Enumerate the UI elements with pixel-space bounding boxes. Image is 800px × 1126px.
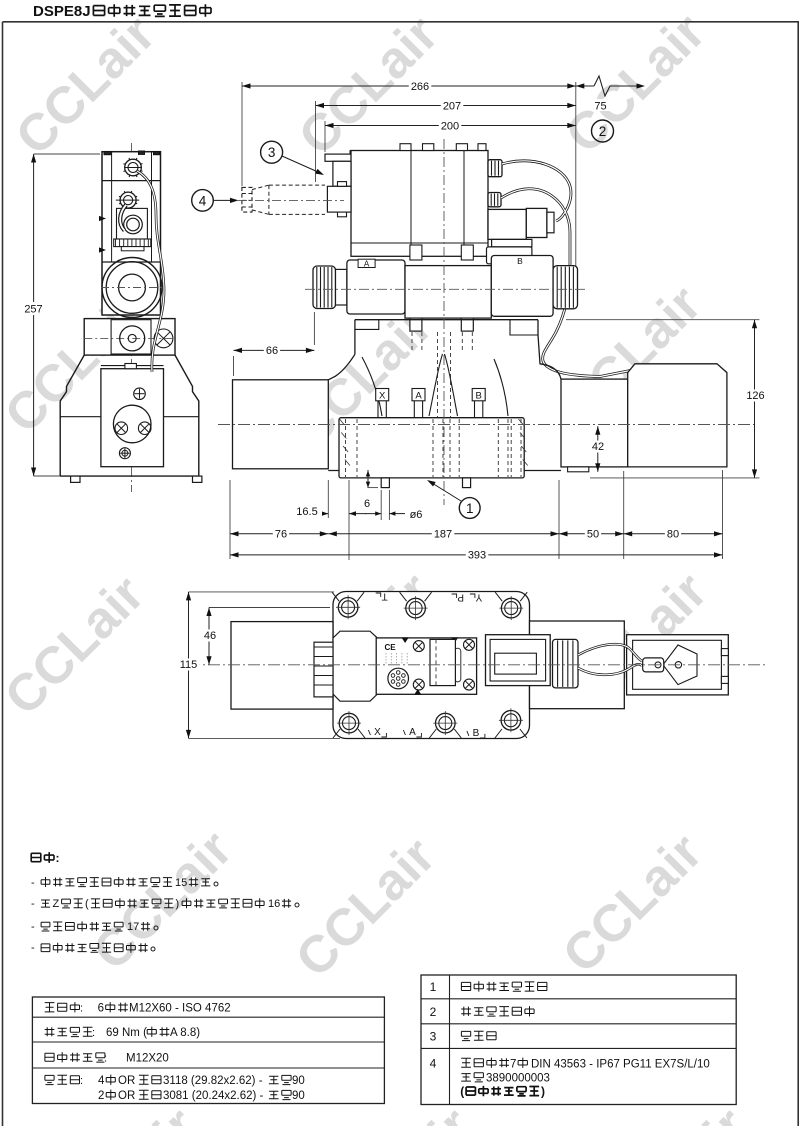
svg-text:4: 4 [98, 1075, 105, 1087]
svg-text:A: A [415, 390, 422, 401]
svg-text:69 Nm (: 69 Nm ( [106, 1027, 147, 1039]
svg-text::: : [92, 1027, 95, 1039]
svg-text:7: 7 [510, 1059, 516, 1071]
svg-text::: : [80, 1075, 83, 1087]
svg-text::: : [56, 851, 60, 865]
svg-text:90: 90 [292, 1090, 305, 1102]
svg-text:-: - [31, 921, 35, 933]
svg-text:2: 2 [599, 124, 607, 139]
svg-text:B: B [476, 390, 482, 401]
svg-text:3081 (20.24x2.62) -: 3081 (20.24x2.62) - [163, 1090, 264, 1102]
svg-text:B: B [517, 256, 523, 266]
svg-text:75: 75 [594, 101, 606, 113]
svg-text:A 8.8): A 8.8) [170, 1027, 200, 1039]
svg-text:OR: OR [118, 1075, 135, 1087]
svg-text::: : [104, 1053, 107, 1065]
svg-text:4: 4 [430, 1057, 437, 1071]
svg-text:187: 187 [434, 529, 452, 541]
svg-text:Z: Z [53, 898, 60, 910]
svg-text:DIN 43563 - IP67 PG11 EX7S/L/1: DIN 43563 - IP67 PG11 EX7S/L/10 [531, 1059, 710, 1071]
svg-text:257: 257 [24, 304, 42, 316]
svg-text:3118 (29.82x2.62) -: 3118 (29.82x2.62) - [163, 1075, 263, 1087]
svg-text:(: ( [460, 1085, 464, 1099]
svg-text:4: 4 [199, 193, 207, 208]
svg-text:ø6: ø6 [410, 509, 423, 521]
svg-text:CE: CE [385, 643, 397, 652]
svg-text:42: 42 [592, 441, 604, 453]
svg-text:B: B [473, 728, 480, 739]
svg-text:393: 393 [468, 550, 486, 562]
svg-text:CCLair: CCLair [597, 1097, 759, 1126]
svg-text:-: - [31, 942, 35, 954]
svg-text:): ) [541, 1085, 545, 1099]
svg-text:X: X [374, 727, 381, 738]
svg-text:115: 115 [180, 659, 198, 671]
svg-text:15: 15 [175, 877, 187, 889]
svg-text:CCLair: CCLair [285, 827, 447, 989]
svg-text:1: 1 [466, 501, 474, 516]
svg-text:CCLair: CCLair [0, 565, 155, 727]
svg-text:66: 66 [266, 345, 278, 357]
svg-text:80: 80 [667, 529, 679, 541]
svg-text:A: A [364, 260, 370, 269]
svg-text:90: 90 [292, 1075, 305, 1087]
svg-text:): ) [176, 898, 180, 910]
svg-text:3890000003: 3890000003 [486, 1073, 550, 1085]
svg-text:2: 2 [430, 1005, 437, 1019]
svg-text:A: A [409, 727, 416, 738]
svg-text:76: 76 [275, 529, 287, 541]
svg-text:(: ( [85, 898, 89, 910]
svg-text:-: - [31, 877, 35, 889]
svg-text:M12X20: M12X20 [126, 1053, 169, 1065]
svg-text:CCLair: CCLair [552, 823, 714, 985]
svg-text:X: X [379, 390, 386, 401]
svg-text:207: 207 [443, 100, 461, 112]
svg-text:266: 266 [411, 81, 429, 93]
svg-text:50: 50 [587, 529, 599, 541]
svg-text:-: - [31, 898, 35, 910]
svg-text:CCLair: CCLair [322, 1097, 484, 1126]
svg-text:CCLair: CCLair [5, 5, 167, 167]
svg-text:46: 46 [204, 630, 216, 642]
svg-text:3: 3 [430, 1030, 437, 1044]
svg-text:200: 200 [441, 120, 459, 132]
svg-text:P: P [457, 592, 464, 603]
svg-text::: : [80, 1003, 83, 1015]
svg-text:6: 6 [98, 1003, 104, 1015]
svg-text:CCLair: CCLair [555, 3, 717, 165]
svg-text:17: 17 [127, 921, 139, 933]
svg-text:Y: Y [475, 592, 482, 603]
svg-text:T: T [382, 591, 388, 602]
svg-text:126: 126 [746, 390, 764, 402]
svg-text:6: 6 [364, 498, 370, 510]
svg-text:OR: OR [118, 1090, 135, 1102]
svg-text:CCLair: CCLair [82, 820, 244, 982]
svg-text:16: 16 [268, 898, 280, 910]
svg-text:1: 1 [430, 980, 437, 994]
svg-text:16.5: 16.5 [296, 506, 317, 518]
svg-text:DSPE8J: DSPE8J [33, 3, 91, 20]
svg-text:2: 2 [98, 1090, 104, 1102]
svg-text:M12X60 - ISO 4762: M12X60 - ISO 4762 [129, 1003, 231, 1015]
svg-text:3: 3 [268, 145, 276, 160]
